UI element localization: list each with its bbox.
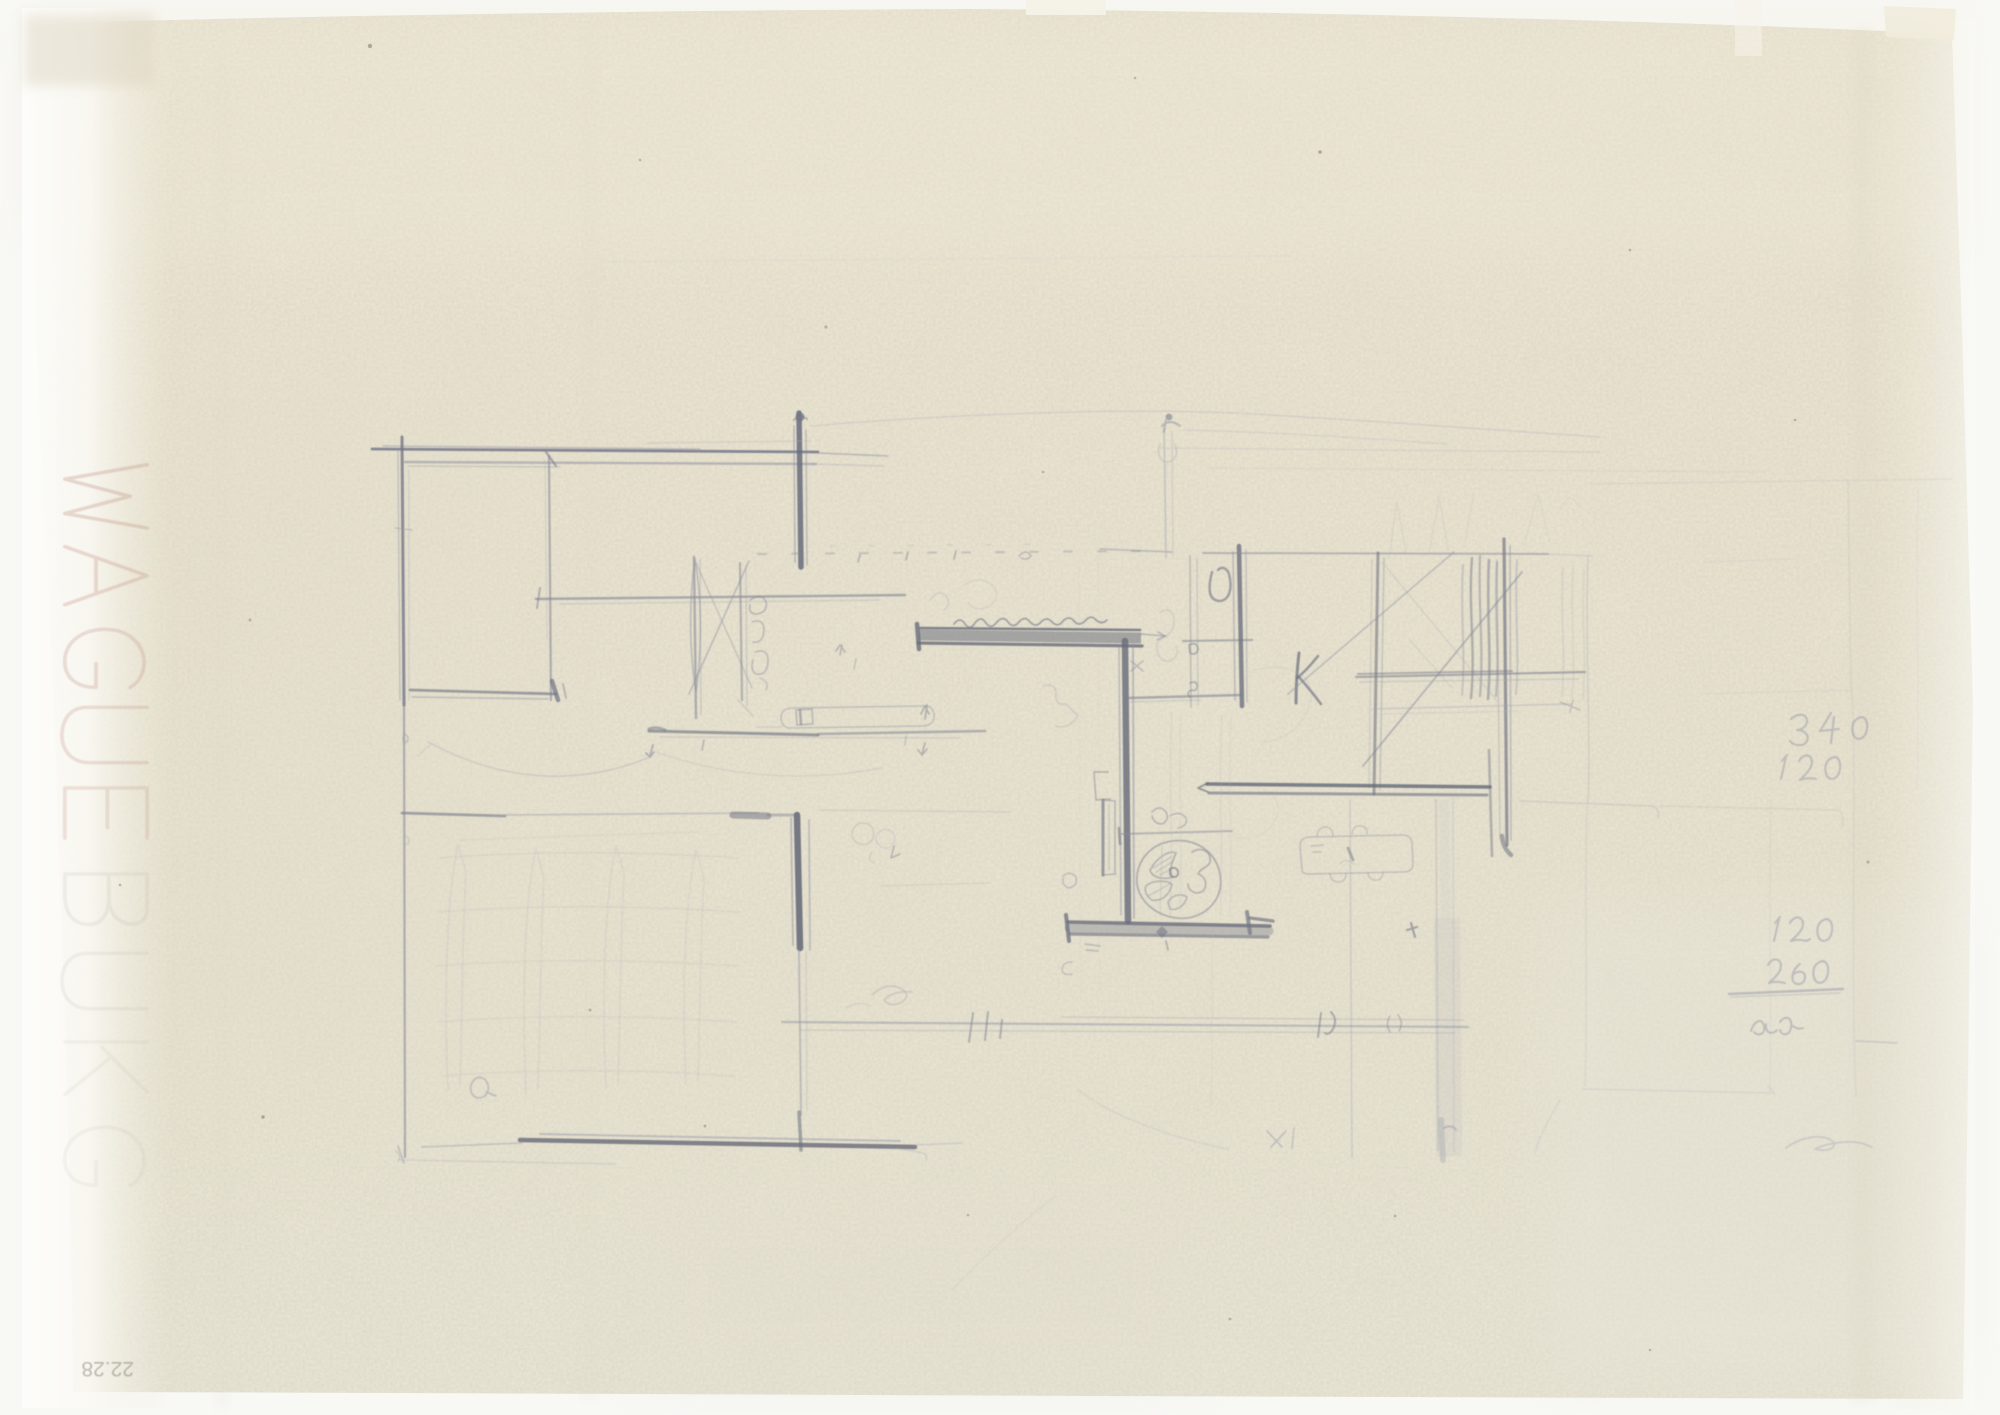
svg-text:22.28: 22.28: [81, 1357, 134, 1380]
